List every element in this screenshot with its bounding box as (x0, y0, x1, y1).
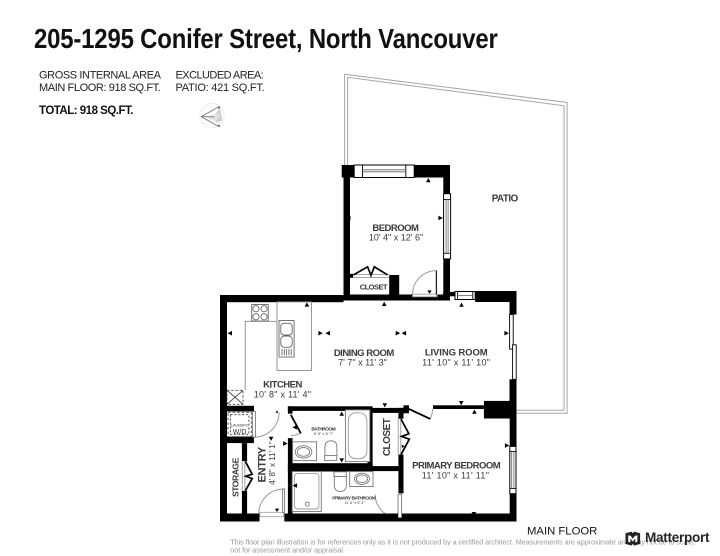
svg-text:STORAGE: STORAGE (230, 457, 240, 497)
svg-text:EXCLUDED AREA:: EXCLUDED AREA: (176, 70, 264, 82)
svg-text:9' 3" x 5' 7": 9' 3" x 5' 7" (314, 431, 334, 436)
svg-text:TOTAL: 918 SQ.FT.: TOTAL: 918 SQ.FT. (39, 105, 133, 117)
svg-text:W/D: W/D (233, 429, 247, 436)
svg-text:GROSS INTERNAL AREA: GROSS INTERNAL AREA (39, 70, 162, 82)
svg-text:PATIO: 421 SQ.FT.: PATIO: 421 SQ.FT. (176, 82, 265, 94)
svg-text:10' 8" x 11' 4": 10' 8" x 11' 4" (254, 389, 311, 399)
svg-text:CLOSET: CLOSET (360, 282, 388, 291)
svg-text:10' 4" x 12' 6": 10' 4" x 12' 6" (369, 232, 423, 242)
svg-text:7' 7" x 11' 3": 7' 7" x 11' 3" (338, 358, 387, 368)
svg-text:4' 8" x 11' 1": 4' 8" x 11' 1" (268, 441, 277, 484)
svg-text:11' 6" x 5' 4": 11' 6" x 5' 4" (345, 501, 366, 505)
svg-text:MAIN FLOOR: MAIN FLOOR (527, 526, 597, 538)
svg-text:LAUNDRY: LAUNDRY (231, 424, 249, 428)
svg-text:Matterport: Matterport (645, 530, 710, 545)
svg-text:11' 10" x 11' 11": 11' 10" x 11' 11" (422, 471, 489, 481)
svg-text:MAIN FLOOR: 918 SQ.FT.: MAIN FLOOR: 918 SQ.FT. (39, 82, 161, 94)
svg-text:11' 10" x 11' 10": 11' 10" x 11' 10" (422, 358, 490, 368)
svg-text:CLOSET: CLOSET (382, 418, 393, 456)
svg-text:not for assessment and/or appr: not for assessment and/or appraisal. (230, 546, 345, 555)
svg-text:PATIO: PATIO (492, 194, 519, 205)
svg-text:205-1295 Conifer Street, North: 205-1295 Conifer Street, North Vancouver (34, 25, 498, 55)
svg-text:ENTRY: ENTRY (256, 446, 268, 482)
